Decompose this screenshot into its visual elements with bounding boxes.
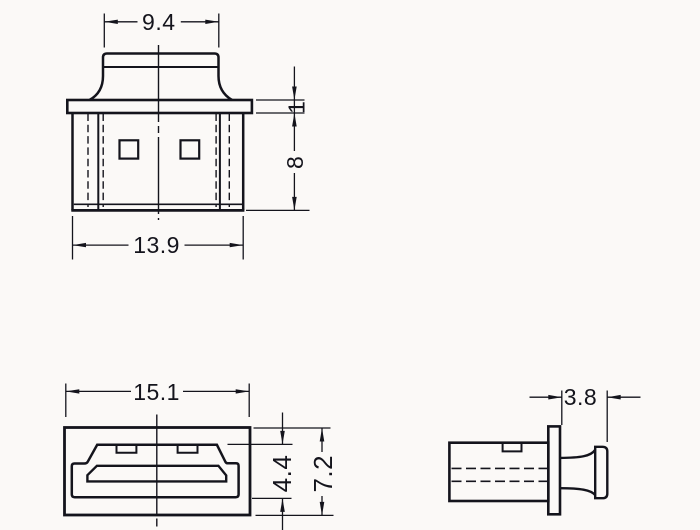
svg-text:13.9: 13.9 bbox=[133, 232, 180, 258]
svg-text:15.1: 15.1 bbox=[133, 379, 180, 405]
svg-text:1: 1 bbox=[283, 101, 309, 114]
svg-text:7.2: 7.2 bbox=[308, 455, 338, 493]
svg-text:9.4: 9.4 bbox=[142, 9, 175, 35]
svg-text:3.8: 3.8 bbox=[564, 384, 597, 410]
svg-text:4.4: 4.4 bbox=[267, 455, 297, 493]
svg-text:8: 8 bbox=[282, 156, 308, 169]
